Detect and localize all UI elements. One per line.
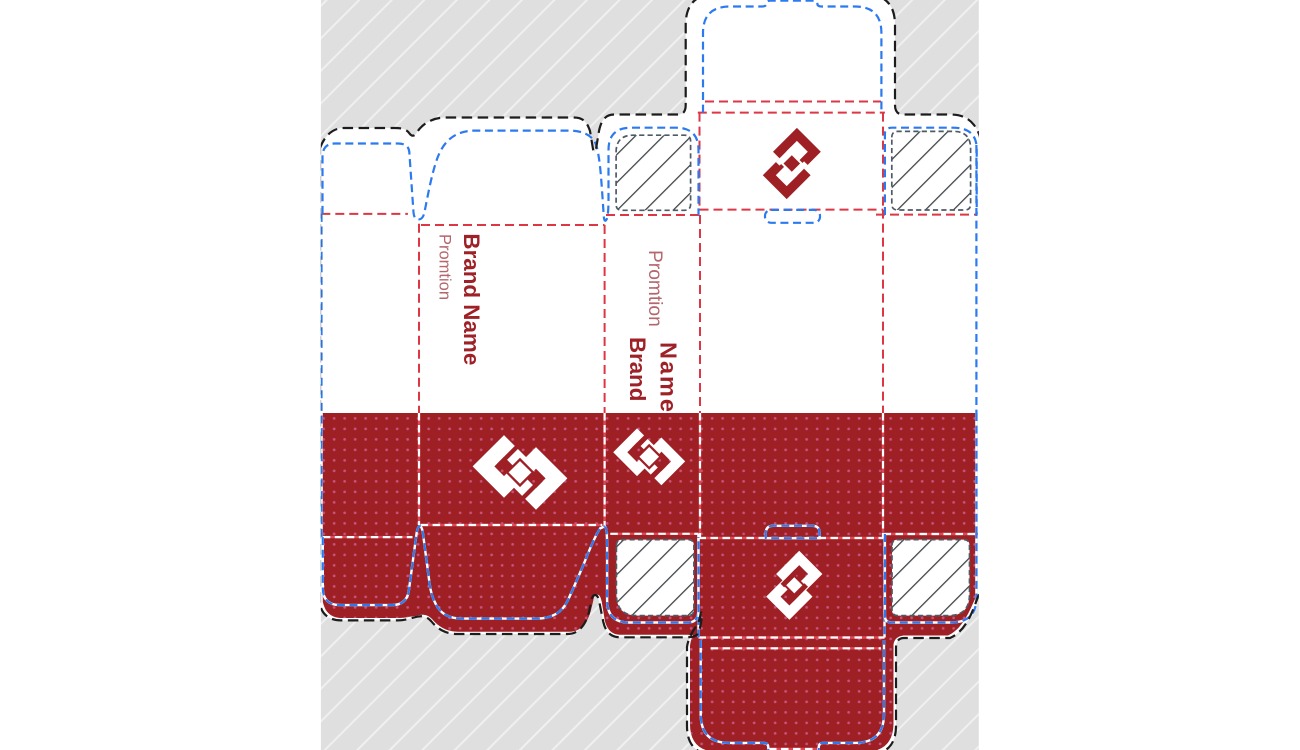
svg-text:Promtion: Promtion xyxy=(644,250,665,327)
svg-text:Brand: Brand xyxy=(625,337,650,401)
svg-text:Promtion: Promtion xyxy=(436,234,454,300)
svg-text:Brand Name: Brand Name xyxy=(459,233,484,365)
svg-text:Name: Name xyxy=(656,342,682,414)
